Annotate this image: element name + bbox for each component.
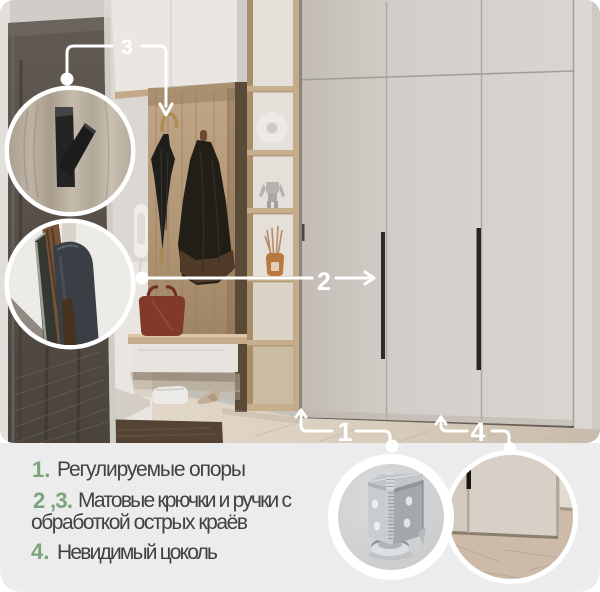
svg-text:2: 2	[317, 268, 331, 296]
svg-text:4.: 4.	[31, 539, 49, 564]
svg-text:Регулируемые опоры: Регулируемые опоры	[57, 458, 246, 481]
svg-text:1: 1	[337, 417, 352, 447]
svg-text:1.: 1.	[32, 457, 50, 482]
svg-text:2 ,3.: 2 ,3.	[33, 488, 73, 513]
svg-text:Невидимый цоколь: Невидимый цоколь	[57, 541, 218, 564]
svg-text:обработкой острых краёв: обработкой острых краёв	[31, 511, 248, 534]
svg-text:Матовые крючки и ручки с: Матовые крючки и ручки с	[78, 489, 292, 512]
svg-text:3: 3	[121, 36, 133, 59]
svg-text:4: 4	[470, 417, 485, 447]
